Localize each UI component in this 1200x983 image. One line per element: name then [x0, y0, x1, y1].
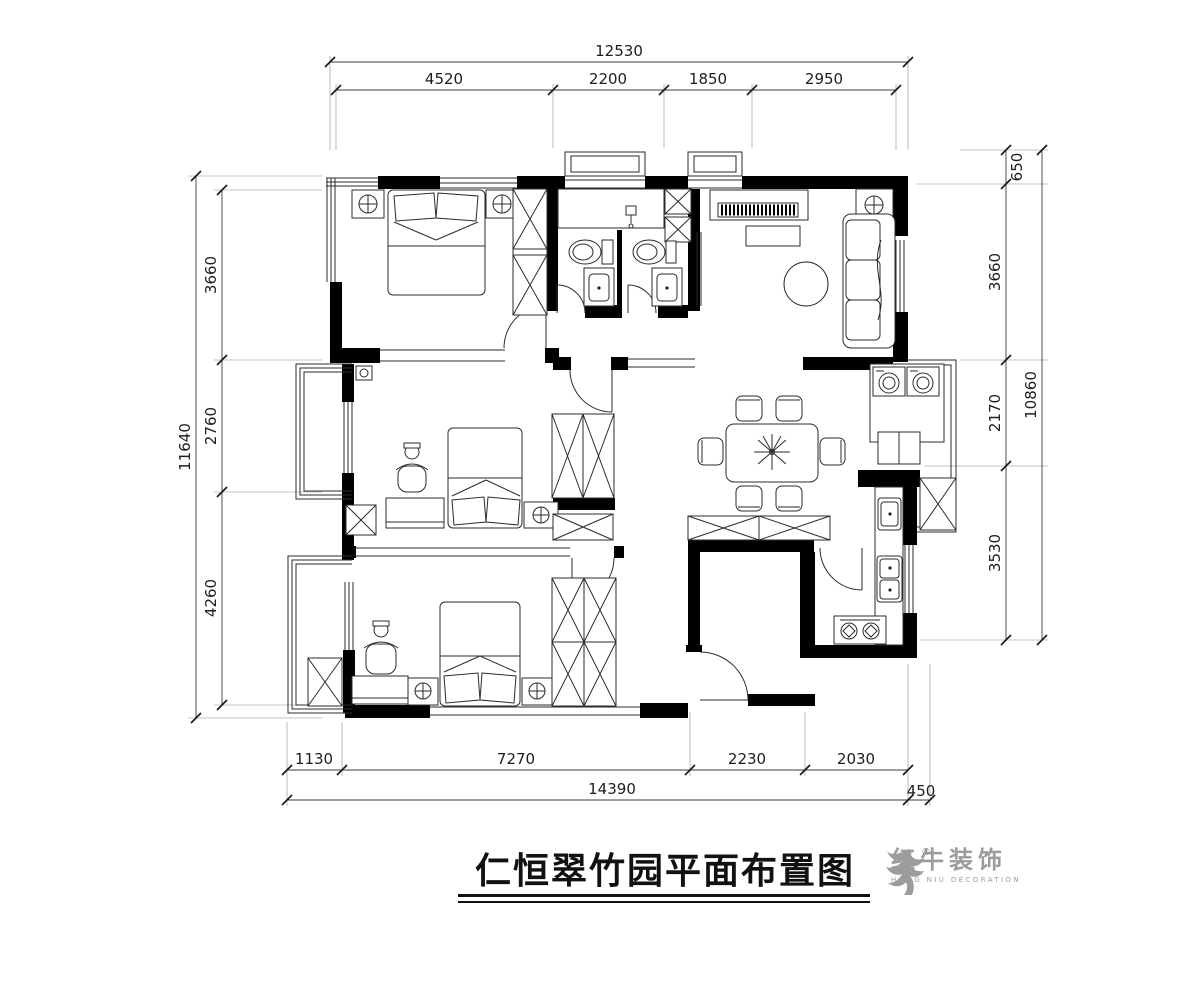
dim-right-offset: 650 [1008, 153, 1026, 182]
dim-left-overall: 11640 [176, 423, 194, 471]
dim-bottom-seg-3: 2030 [837, 750, 875, 768]
coffee-table [784, 262, 828, 306]
dim-top-seg-2: 1850 [689, 70, 727, 88]
dim-left-seg-0: 3660 [202, 256, 220, 294]
chair [398, 466, 426, 492]
dresser [386, 498, 444, 528]
bull-icon: ® [885, 843, 931, 897]
dining-furniture [698, 396, 845, 511]
dim-right-seg-0: 3660 [986, 253, 1004, 291]
bedroom2-furniture [356, 366, 614, 540]
dim-bottom-seg-2: 2230 [728, 750, 766, 768]
kitchen-furniture [834, 364, 956, 645]
dim-right-seg-2: 3530 [986, 534, 1004, 572]
dim-bottom-offset: 450 [907, 782, 936, 800]
dim-top-seg-0: 4520 [425, 70, 463, 88]
hall-closet [688, 516, 830, 540]
dim-right-overall: 10860 [1022, 371, 1040, 419]
floor-plan-drawing: 12530 4520 2200 1850 2950 11640 3660 276… [0, 0, 1200, 983]
bedroom1-furniture [352, 189, 547, 315]
dim-left-seg-2: 4260 [202, 579, 220, 617]
bathrooms-furniture [558, 189, 691, 306]
dim-top-overall: 12530 [595, 42, 643, 60]
dim-top-seg-1: 2200 [589, 70, 627, 88]
company-logo: ® 红牛装饰 HONG NIU DECORATION [885, 843, 1075, 899]
chair [366, 644, 396, 674]
dim-bottom-overall: 14390 [588, 780, 636, 798]
dim-right-seg-1: 2170 [986, 394, 1004, 432]
wardrobe [513, 189, 547, 315]
dim-left-seg-1: 2760 [202, 407, 220, 445]
title-underline [458, 894, 870, 903]
dim-bottom-seg-1: 7270 [497, 750, 535, 768]
drawing-title: 仁恒翠竹园平面布置图 [455, 842, 875, 894]
registered-mark: ® [921, 847, 931, 858]
desk [352, 676, 408, 704]
floor-plan-page: 12530 4520 2200 1850 2950 11640 3660 276… [0, 0, 1200, 983]
toilet [569, 240, 601, 264]
wash-counter [558, 189, 664, 228]
toilet [633, 240, 665, 264]
dim-bottom-seg-0: 1130 [295, 750, 333, 768]
dim-top-seg-3: 2950 [805, 70, 843, 88]
living-room-furniture [710, 189, 895, 348]
